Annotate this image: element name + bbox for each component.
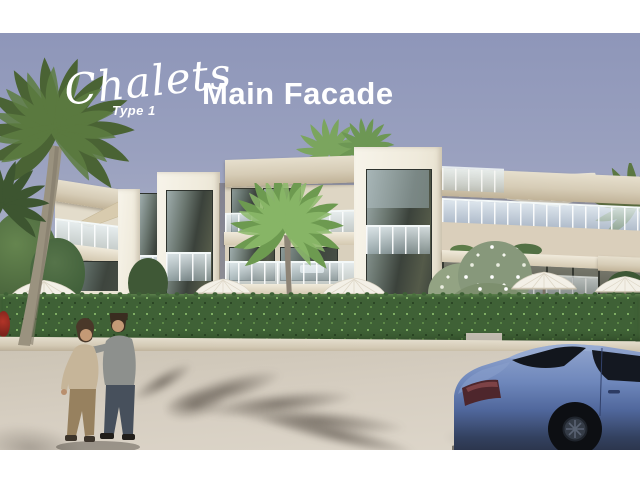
rooftop-railing [442,166,504,193]
frame-a-balustrade [166,252,211,281]
slide-canvas: Chalets Type 1 Main Facade [0,0,640,480]
page-title: Main Facade [202,76,394,112]
brand-subtitle: Type 1 [112,103,156,118]
car-door-handle [608,390,620,394]
blue-sedan-car [452,336,640,450]
frame-b-balustrade [366,225,430,254]
woman-pants [67,389,96,436]
render-scene: Chalets Type 1 Main Facade [0,33,640,450]
frame-b-sky-reflection [367,170,429,208]
man-jeans [104,385,135,435]
